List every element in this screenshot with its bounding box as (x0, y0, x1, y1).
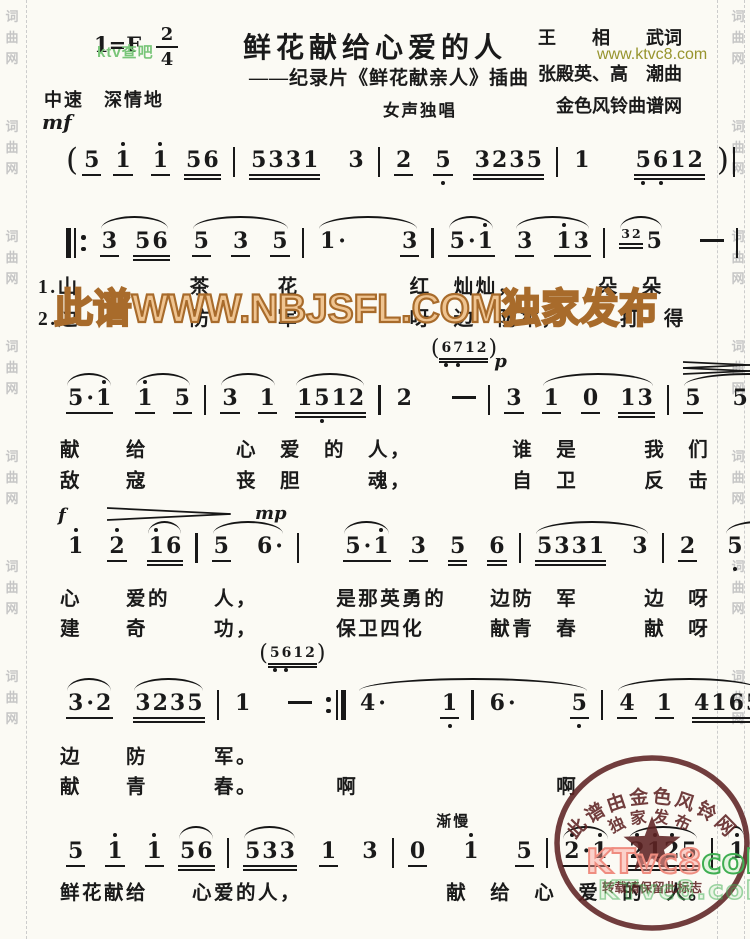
note: 2 (395, 385, 414, 412)
octave-dot-above (115, 528, 119, 532)
note: 56 (178, 838, 215, 871)
watermark-ktvc8-url: www.ktvc8.com (597, 46, 707, 64)
note: 3 (100, 228, 119, 257)
slur (67, 678, 111, 691)
edge-watermark-char: 网 (5, 158, 18, 179)
slur (359, 678, 587, 691)
slur (516, 216, 589, 229)
note: 1 (135, 385, 154, 414)
octave-dot-below (448, 724, 452, 728)
barline (297, 533, 299, 563)
slur (136, 373, 190, 386)
site-credit: 金色风铃曲谱网 (556, 92, 682, 118)
music-line-2: 3565351·35·13133255653 (66, 228, 706, 261)
barline (601, 690, 603, 720)
edge-watermark-char: 词 (5, 226, 18, 247)
note: 3·2 (66, 690, 113, 719)
note: 5·1 (343, 533, 390, 562)
slur (221, 373, 275, 386)
music-line-4: 121656·5·135653313255 (66, 533, 706, 566)
edge-watermark-char: 网 (731, 268, 744, 289)
octave-dot-above (152, 833, 156, 837)
note: 1 (319, 838, 338, 867)
octave-dot-below (659, 181, 663, 185)
lyrics-line-3-row-2: 敌 寇 丧 胆 魂， 自 卫 反 击 (38, 464, 710, 493)
edge-watermark-char: 曲 (731, 467, 744, 488)
edge-watermark-char: 词 (5, 556, 18, 577)
octave-dot-above (158, 142, 162, 146)
edge-rule-left (26, 0, 27, 939)
barline (733, 147, 735, 177)
note: 5 (192, 228, 211, 257)
note: 3 (400, 228, 419, 257)
note: 1 (66, 533, 85, 560)
edge-watermark-char: 网 (5, 708, 18, 729)
note: 1 (572, 147, 591, 174)
edge-watermark-char: 网 (5, 488, 18, 509)
lyrics-line-5-row-1: 边 防 军。 (38, 740, 258, 769)
barline (378, 147, 380, 177)
note: 1 (233, 690, 252, 717)
edge-watermark-char: 词 (5, 666, 18, 687)
slur (536, 521, 648, 534)
note: 1 (113, 147, 132, 176)
note: 1 (542, 385, 561, 414)
barline (736, 228, 738, 258)
note: 5·1 (66, 385, 113, 414)
note: 533 (243, 838, 297, 871)
dash-note (700, 239, 724, 242)
music-line-5: 3·2323514·16·54141655 (66, 690, 706, 723)
note: 1 (105, 838, 124, 867)
note: 1 (461, 838, 480, 865)
edge-watermark-char: 网 (5, 268, 18, 289)
slur (244, 826, 295, 839)
note: 6· (488, 690, 518, 717)
note: 5 (270, 228, 289, 257)
note: 1 (655, 690, 674, 719)
note: 4165 (692, 690, 750, 723)
slur (319, 216, 417, 229)
parenthesis: ( (259, 641, 268, 666)
note: 5 (173, 385, 192, 414)
note: 2 (678, 533, 697, 562)
edge-watermark-char: 词 (5, 6, 18, 27)
note: 56 (184, 147, 221, 180)
slur (449, 216, 493, 229)
watermark-ktv-chaba: ktv查吧 (97, 41, 154, 62)
octave-dot-above (74, 528, 78, 532)
slur (134, 678, 202, 691)
edge-watermark-char: 网 (731, 598, 744, 619)
edge-watermark-char: 曲 (5, 577, 18, 598)
barline (556, 147, 558, 177)
note: 1· (318, 228, 348, 255)
edge-watermark-char: 词 (731, 446, 744, 467)
edge-watermark-char: 曲 (5, 357, 18, 378)
note: 0 (581, 385, 600, 414)
repeat-dots (81, 228, 86, 258)
dash-note (452, 396, 476, 399)
slur (296, 373, 364, 386)
edge-watermark-char: 词 (5, 446, 18, 467)
lyrics-line-3-row-1: 献 给 心 爱 的 人， 谁 是 我 们 (38, 433, 710, 462)
note: 1 (151, 147, 170, 176)
lyrics-line-4-row-1: 心 爱的 人， 是那英勇的 边防 军 边 呀 (38, 582, 710, 611)
note: 3 (220, 385, 239, 414)
slur (543, 373, 653, 386)
edge-watermark-char: 曲 (5, 247, 18, 268)
cue-notes: (5612) (259, 644, 325, 668)
note: 5 (515, 838, 534, 867)
note: 4 (617, 690, 636, 719)
barline (471, 690, 473, 720)
dynamic-mark: p (494, 351, 507, 372)
barline (217, 690, 219, 720)
tempo-change-label: 渐慢 (436, 810, 470, 831)
lyrics-line-5-row-2: 献 青 春。 啊 啊 (38, 770, 578, 799)
barline (233, 147, 235, 177)
note: 5 (645, 228, 664, 255)
octave-dot-above (113, 833, 117, 837)
octave-dot-below (733, 567, 737, 571)
watermark-ktvc8-ghost: KTvc8.coM (598, 876, 750, 906)
note: 6 (487, 533, 506, 566)
barline (488, 385, 490, 415)
note: 16 (147, 533, 184, 566)
repeat-dots (326, 690, 331, 720)
slur (148, 521, 182, 534)
barline (519, 533, 521, 563)
note: 3 (231, 228, 250, 257)
note: 5331 (535, 533, 606, 566)
edge-watermark-char: 网 (5, 378, 18, 399)
cue-notes: (6712) (431, 339, 497, 363)
note: 2 (107, 533, 126, 562)
barline (227, 838, 229, 868)
note: 3 (409, 533, 428, 562)
slur (620, 216, 662, 229)
edge-watermark-char: 词 (5, 116, 18, 137)
slur (193, 216, 288, 229)
octave-dot-below (641, 181, 645, 185)
note: 5612 (634, 147, 705, 180)
note: 5 (448, 533, 467, 566)
note: 3235 (133, 690, 204, 723)
barline (662, 533, 664, 563)
note: 5 (212, 533, 231, 562)
slur (618, 678, 750, 691)
barline (378, 385, 380, 415)
music-line-1: (511565331325323515612) (66, 147, 706, 180)
octave-dot-below (273, 668, 277, 672)
note: 1 (258, 385, 277, 414)
edge-watermark-char: 词 (5, 336, 18, 357)
edge-watermark-char: 曲 (5, 687, 18, 708)
slur (179, 826, 213, 839)
edge-watermark-char: 曲 (5, 137, 18, 158)
dynamic-mark: f (58, 505, 66, 526)
repeat-end-barline (324, 690, 346, 720)
slur (67, 373, 111, 386)
note: 5 (683, 385, 702, 414)
octave-dot-below (441, 181, 445, 185)
note: 5 (433, 147, 452, 176)
octave-dot-below (577, 724, 581, 728)
edge-watermark-left: 词曲网词曲网词曲网词曲网词曲网词曲网词曲网 (3, 6, 21, 776)
dynamic-mf: mf (42, 110, 72, 134)
sheet-music-page: 1=F 2 4 ktv查吧 中速 深情地 mf 鲜花献给心爱的人 ——纪录片《鲜… (0, 0, 750, 939)
note: 6· (255, 533, 285, 560)
barline (302, 228, 304, 258)
note: 5 (731, 385, 750, 412)
barline (392, 838, 394, 868)
note: 56 (133, 228, 170, 261)
parenthesis: ) (317, 641, 326, 666)
slur (101, 216, 168, 229)
note: 1 (440, 690, 459, 719)
note: 1 (145, 838, 164, 867)
note: 5 (66, 838, 85, 867)
edge-watermark-char: 网 (5, 598, 18, 619)
lyrics-line-4-row-2: 建 奇 功， 保卫四化 献青 春 献 呀 (38, 612, 710, 641)
octave-dot-below (444, 363, 448, 367)
note: 3 (346, 147, 365, 174)
edge-watermark-char: 曲 (5, 467, 18, 488)
note: 3 (515, 228, 534, 257)
barline (431, 228, 433, 258)
octave-dot-below (320, 419, 324, 423)
note: 5 (725, 533, 744, 560)
dash-note (288, 701, 312, 704)
edge-watermark-char: 词 (731, 6, 744, 27)
note: 13 (554, 228, 591, 257)
parenthesis: ( (66, 142, 78, 178)
barline (204, 385, 206, 415)
note: 4· (358, 690, 388, 717)
note: 0 (408, 838, 427, 867)
note: 3 (630, 533, 649, 560)
slur (344, 521, 388, 534)
watermark-nbjsfl: 此谱WWW.NBJSFL.COM独家发布 (54, 276, 658, 334)
note: 1512 (295, 385, 366, 418)
note: 5 (570, 690, 589, 719)
barline (667, 385, 669, 415)
parenthesis: ) (717, 142, 729, 178)
note: 5 (82, 147, 101, 176)
hairpin-dim (107, 507, 231, 521)
edge-watermark-char: 网 (731, 488, 744, 509)
edge-watermark-char: 曲 (731, 577, 744, 598)
octave-dot-below (456, 363, 460, 367)
note: 5331 (249, 147, 320, 180)
note: 3 (360, 838, 379, 865)
barline (195, 533, 197, 563)
octave-dot-below (284, 668, 288, 672)
note: 2 (394, 147, 413, 176)
note: 13 (618, 385, 655, 418)
note: 3235 (473, 147, 544, 180)
octave-dot-above (469, 833, 473, 837)
edge-watermark-char: 词 (731, 336, 744, 357)
note: 3 (504, 385, 523, 414)
repeat-begin-barline (66, 228, 88, 258)
octave-dot-above (121, 142, 125, 146)
note: 5·1 (448, 228, 495, 257)
music-line-3: 5·1153115122310135535 (66, 385, 706, 418)
barline (603, 228, 605, 258)
parenthesis: ( (431, 336, 440, 361)
